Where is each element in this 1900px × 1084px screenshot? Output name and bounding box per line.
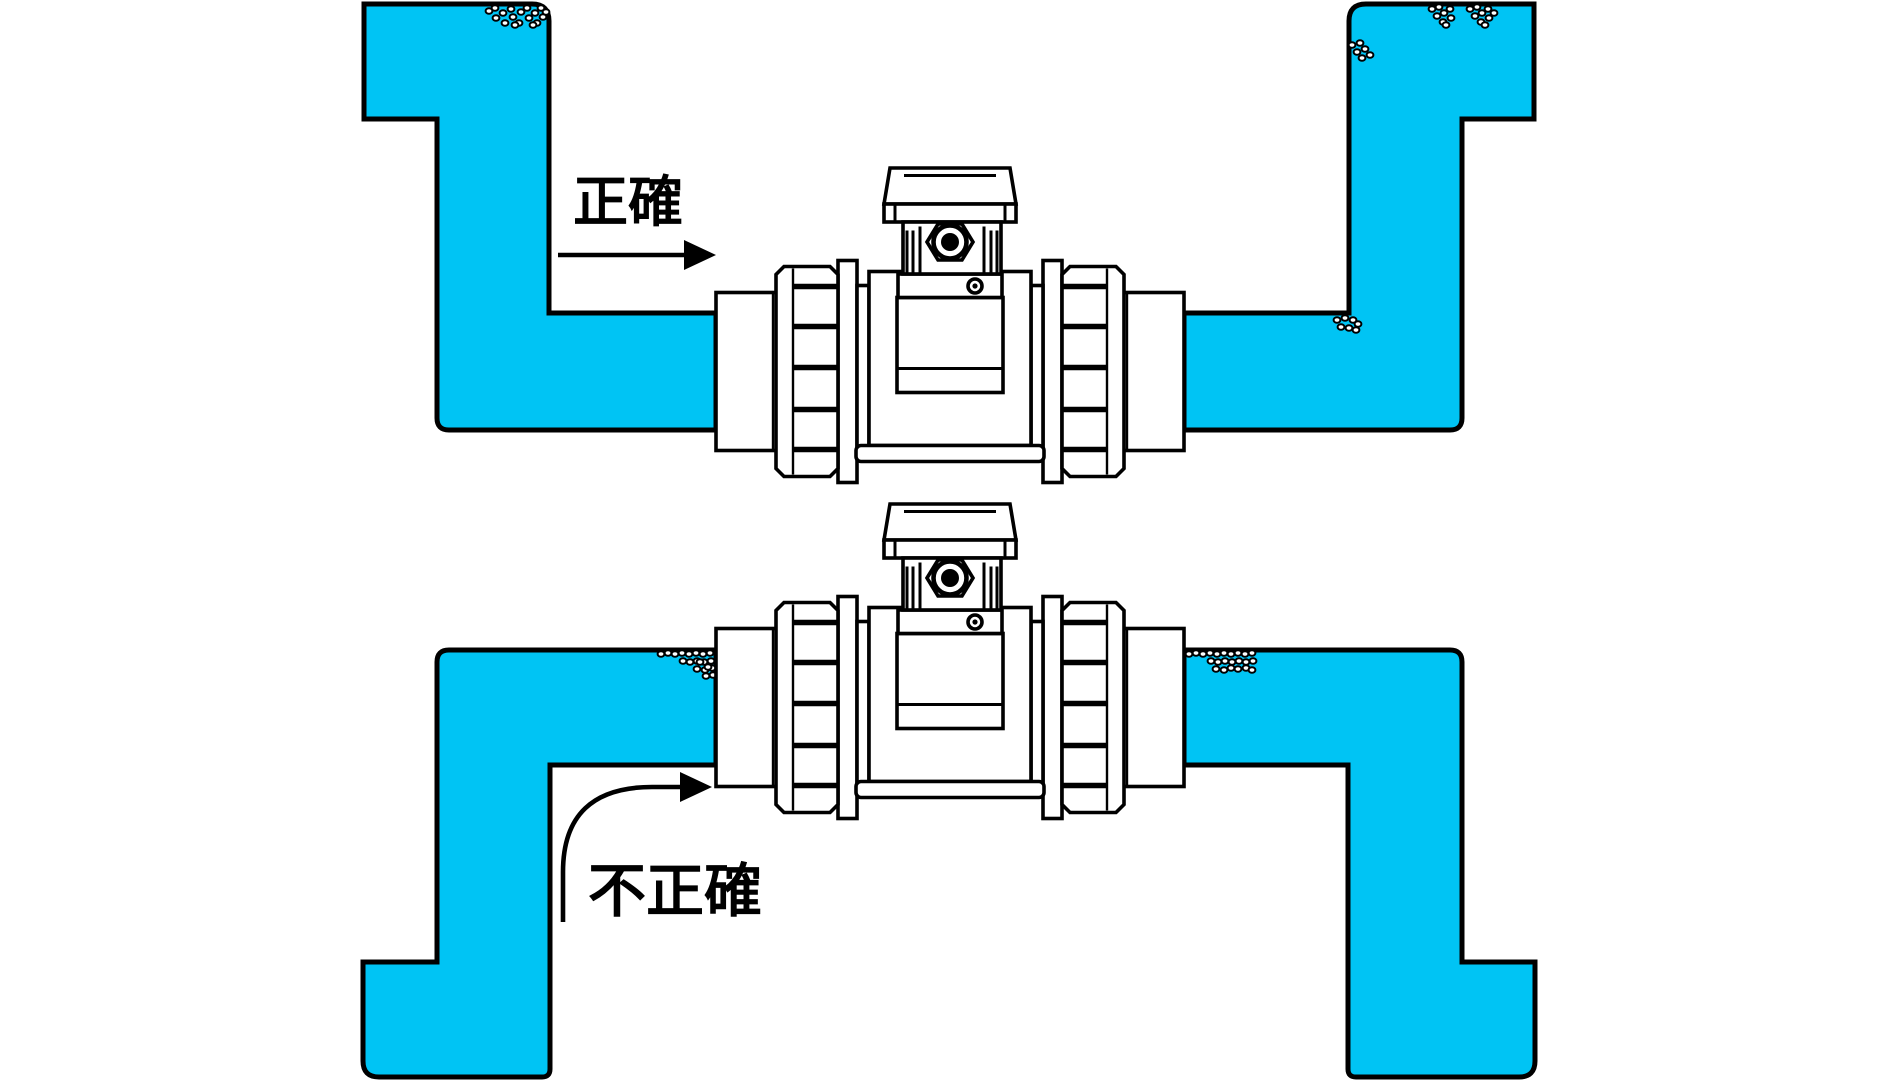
air-bubble xyxy=(687,659,694,665)
air-bubble xyxy=(1355,321,1362,327)
air-bubble xyxy=(679,650,686,656)
air-bubble xyxy=(1472,13,1479,19)
correct-flow-arrow xyxy=(558,240,716,270)
air-bubble xyxy=(502,20,509,26)
air-bubble xyxy=(500,10,507,16)
air-bubble xyxy=(1443,22,1450,28)
flow-meter-correct xyxy=(716,168,1184,483)
air-bubble xyxy=(1342,315,1349,321)
air-bubble xyxy=(543,9,550,15)
air-bubble xyxy=(694,666,701,672)
correct-label: 正確 xyxy=(573,170,683,234)
air-bubble xyxy=(707,650,714,656)
air-bubble xyxy=(700,651,707,657)
air-bubble xyxy=(1436,4,1443,10)
air-bubble xyxy=(1186,651,1193,657)
air-bubble xyxy=(1214,651,1221,657)
air-bubble xyxy=(1429,6,1436,12)
air-bubble xyxy=(665,650,672,656)
air-bubble xyxy=(1491,10,1498,16)
air-bubble xyxy=(1228,651,1235,657)
air-bubble xyxy=(1447,6,1454,12)
air-bubble xyxy=(1482,22,1489,28)
air-bubble xyxy=(1242,651,1249,657)
air-bubble xyxy=(672,651,679,657)
incorrect-right-pipe xyxy=(1184,650,1535,1077)
correct-right-pipe xyxy=(1184,4,1534,430)
air-bubble xyxy=(492,5,499,11)
air-bubble xyxy=(1448,15,1455,21)
air-bubble xyxy=(1200,651,1207,657)
air-bubble xyxy=(1334,317,1341,323)
air-bubble xyxy=(1235,666,1242,672)
air-bubble xyxy=(1467,6,1474,12)
air-bubble xyxy=(703,673,710,679)
air-bubble xyxy=(1349,42,1356,48)
air-bubble xyxy=(1338,324,1345,330)
air-bubble xyxy=(1249,667,1256,673)
air-bubble xyxy=(512,22,519,28)
incorrect-label: 不正確 xyxy=(588,857,762,925)
air-bubble xyxy=(1208,658,1215,664)
air-bubble xyxy=(1222,658,1229,664)
air-bubble xyxy=(1229,659,1236,665)
air-bubble xyxy=(1215,659,1222,665)
air-bubble xyxy=(508,6,515,12)
air-bubble xyxy=(1474,4,1481,10)
air-bubble xyxy=(697,659,704,665)
air-bubble xyxy=(680,658,687,664)
air-bubble xyxy=(510,14,517,20)
diagram-canvas: 正確 不正確 xyxy=(0,0,1900,1084)
incorrect-installation-diagram: 不正確 xyxy=(363,504,1535,1077)
air-bubble xyxy=(524,5,531,11)
air-bubble xyxy=(705,664,712,670)
air-bubble xyxy=(1362,46,1369,52)
air-bubble xyxy=(526,15,533,21)
air-bubble xyxy=(693,650,700,656)
air-bubble xyxy=(1434,13,1441,19)
flow-meter-incorrect xyxy=(716,504,1184,819)
air-bubble xyxy=(1357,40,1364,46)
air-bubble xyxy=(1354,49,1361,55)
air-bubble xyxy=(1221,650,1228,656)
air-bubble xyxy=(1353,327,1360,333)
air-bubble xyxy=(1228,665,1235,671)
air-bubble xyxy=(530,22,537,28)
air-bubble xyxy=(1359,55,1366,61)
correct-installation-diagram: 正確 xyxy=(364,4,1534,483)
air-bubble xyxy=(1250,658,1257,664)
arrow-head-icon xyxy=(684,240,716,270)
air-bubble xyxy=(1207,650,1214,656)
air-bubble xyxy=(1236,658,1243,664)
air-bubble xyxy=(1193,650,1200,656)
air-bubble xyxy=(1221,667,1228,673)
air-bubble xyxy=(686,651,693,657)
air-bubble xyxy=(1235,650,1242,656)
installation-diagram-figure: 正確 不正確 xyxy=(0,0,1900,1084)
air-bubble xyxy=(1243,659,1250,665)
arrow-head-icon xyxy=(680,772,712,802)
air-bubble xyxy=(532,10,539,16)
air-bubble xyxy=(1213,666,1220,672)
air-bubble xyxy=(493,15,500,21)
air-bubble xyxy=(708,658,715,664)
air-bubble xyxy=(1367,52,1374,58)
air-bubble xyxy=(1346,325,1353,331)
air-bubble xyxy=(1249,650,1256,656)
air-bubble xyxy=(658,651,665,657)
